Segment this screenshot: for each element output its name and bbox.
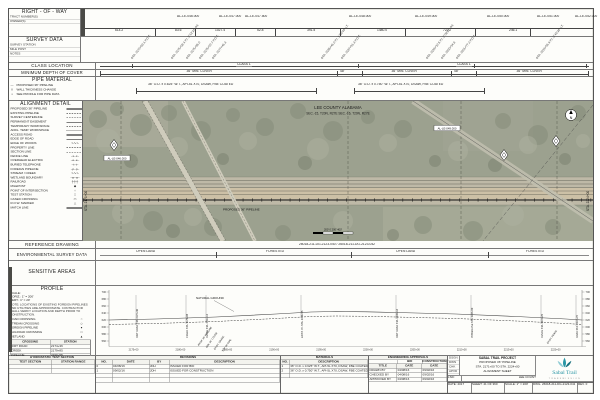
table-cell: DATE [422,364,447,368]
svg-text:620: 620 [586,318,591,322]
table-cell: 09/02/16 [422,373,447,377]
table-cell: 2 [281,369,290,373]
date-value: 2017 [457,383,464,386]
legend-label: PROPOSED 36" PIPELINE [17,84,54,87]
table-cell: 09/02/16 [113,369,150,373]
table-cell: JDH [149,365,169,369]
class-line [100,66,589,67]
legend-label: R.O.W. MARKER [11,202,34,205]
environmental-tick [216,252,217,258]
table-cell: 0 [96,365,113,369]
table-cell: APPROVED BY [369,378,397,382]
logo-leaf-left [558,361,564,367]
logo-leaf-right [565,361,571,367]
legend-symbol [67,122,84,123]
scale-value: 1" = 200' [517,383,529,386]
svg-text:2215+00: 2215+00 [504,349,514,352]
legend-symbol: –x–x– [67,155,84,158]
table-cell [290,374,368,378]
legend-symbol [67,134,84,136]
cover-tick [362,71,363,76]
svg-text:2180+00: 2180+00 [175,349,185,352]
svg-text:ROAD STA. 2219+70: ROAD STA. 2219+70 [576,315,579,338]
dim-tick [155,28,156,36]
table-cell: 1 [96,369,113,373]
table-cell: 09/02/16 [422,378,447,382]
svg-text:700: 700 [102,290,107,294]
reference-drawing-title: REFERENCE DRAWING [9,241,95,248]
tract-tag: AL-LE-049.000 [434,125,460,130]
table-cell: TEST SECTION [9,360,52,364]
legend-label: WALL THICKNESS CHANGE [17,88,57,91]
legend-label: STREAM / CREEK [11,172,36,175]
environmental-tick [351,252,352,258]
cover-tick [476,71,477,76]
survey-data-band: SURVEY DATA SURVEY STATION MILE POST NOT… [9,37,593,63]
svg-text:2175+00: 2175+00 [129,349,139,352]
svg-text:640: 640 [586,311,591,315]
survey-callout: STA. 2201+77.2 P.O.T. [456,34,477,60]
table-cell [149,374,169,378]
pipe-spec-line [136,91,316,92]
legend-symbol [67,148,84,149]
legend-symbol [67,126,84,127]
table-cell: 04/08/16 [113,365,150,369]
tract-label: AL-LE-051.000 [537,15,559,18]
table-cell [52,365,95,369]
sheet-edge-tab [9,267,12,352]
logo-cell: Sabal Trail T R A N S M I S S I O N [536,356,593,382]
legend-row: MATCH LINE [11,206,84,210]
class-tick [474,64,475,68]
cover-tick [451,71,452,76]
legend-symbol: ○ [73,318,90,321]
table-cell [113,378,150,382]
legend-label: FENCE LINE [11,155,29,158]
legend-symbol: –t–t– [67,164,84,167]
svg-text:560: 560 [586,339,591,343]
hydro-table: TEST SECTIONSTATION RANGE [9,360,95,374]
sheet-cell: SHEET: 41 OF 360 [472,383,505,393]
legend-symbol [67,113,84,114]
table-cell: STATION RANGE [52,360,95,364]
legend-symbol: ○ [67,189,84,192]
svg-text:600: 600 [102,325,107,329]
profile-ground-line [109,312,582,321]
lsd-label: LSD: [448,376,461,380]
table-cell [170,378,280,382]
logo-wordmark: Sabal Trail [552,370,577,376]
date-cell: DATE: 2017 [448,383,472,393]
svg-text:POWERLINE STA. 2207+90: POWERLINE STA. 2207+90 [471,307,474,338]
table-cell: 04/08/16 [397,373,422,377]
legend-symbol [67,139,84,140]
svg-text:N: N [570,116,573,120]
dim-tick [405,28,406,36]
right-of-way-band: RIGHT - OF - WAY TRACT NUMBER(S) OWNER(S… [9,9,593,37]
legend-symbol: — [9,84,15,87]
legend-label: WETLAND BOUNDARY [11,176,43,179]
legend-symbol: ∿∿∿ [67,142,84,145]
svg-text:200' 0 200' 400': 200' 0 200' 400' [324,228,343,232]
table-cell: 1 [281,365,290,369]
table-cell [96,374,113,378]
survey-callout-strip: STA. 2172+63.1 P.O.T. STA. 2175+08.4 P.I… [85,37,593,62]
drawing-sheet: RIGHT - OF - WAY TRACT NUMBER(S) OWNER(S… [8,8,594,394]
svg-text:2210+00: 2210+00 [457,349,467,352]
cover-segment-label: 48" [340,70,345,73]
alignment-sheet-page: RIGHT - OF - WAY TRACT NUMBER(S) OWNER(S… [0,0,600,400]
svg-text:AL-LE-049.000: AL-LE-049.000 [438,127,457,131]
svg-text:2200+00: 2200+00 [363,349,373,352]
class-location-strip: CLASS 1 CLASS 1 [96,63,593,69]
cover-title: MINIMUM DEPTH OF COVER [9,70,95,76]
legend-symbol: ‖ [9,88,15,91]
legend-symbol: ┼┼┼ [67,181,84,184]
table-cell: DATE [113,360,150,364]
county-cell: LEE COUNTY, ALABAMA [462,376,536,381]
reference-drawing-panel: REFERENCE DRAWING [9,241,96,248]
profile-scale-line: VERT.: 1" = 20' [10,299,96,303]
table-cell: 36" O.D. x 0.625" W.T., API-5L X70, DSAW… [290,365,368,369]
sensitive-areas-band: SENSITIVE AREAS [9,261,593,286]
dim-label: 1480.0 [377,29,387,32]
owner-field: OWNER(S) [9,20,80,25]
lsd-cell: LSD: [448,376,462,381]
project-line: ALIGNMENT SHEET [460,370,535,375]
table-cell: CROSSING [11,340,51,344]
matchline-right-label: STA. 2224+00 [586,191,590,211]
table-cell: 04/08/16 [397,378,422,382]
survey-field: NOTES [9,52,80,57]
survey-data-panel: SURVEY DATA SURVEY STATION MILE POST NOT… [9,37,81,62]
plan-map: LEE COUNTY ALABAMA SEC.-15, T20N, R27E S… [83,101,593,241]
materials-panel: MATERIALS NO.DESCRIPTION136" O.D. x 0.62… [281,356,369,393]
logo-leaf-center [563,358,566,368]
pipe-spec-strip: 36" O.D. x 0.625" W.T., API-5L X70, DSAW… [96,77,593,100]
legend-label: WETLAND [10,335,25,338]
legend-symbol: □ [67,194,84,197]
tract-label: AL-LE-046.000 [177,15,199,18]
legend-label: MATCH LINE [11,206,29,209]
environmental-line [100,255,589,256]
table-row: APPROVED BY04/08/1609/02/16 [369,378,447,383]
legend-label: PROPERTY LINE [11,146,35,149]
legend-symbol: ▲ [73,335,90,338]
approvals-group-bid: BID [398,360,423,364]
environmental-tick [488,252,489,258]
legend-label: RAILROAD CROSSING [10,331,42,334]
class-location-band: CLASS LOCATION CLASS 1 CLASS 1 [9,63,593,70]
table-cell [96,378,113,382]
legend-label: OVERHEAD ELECTRIC [11,159,44,162]
map-pipeline-label: PROPOSED 36" PIPELINE [223,208,260,212]
profile-elevation-labels-right: 700680 660640 620600 580560 [586,290,591,343]
tract-label: AL-LE-049.000 [415,15,437,18]
table-cell [52,369,95,373]
legend-label: FOREIGN PIPELINE [10,327,38,330]
legend-symbol: –e–e– [67,159,84,162]
svg-text:660: 660 [102,304,107,308]
approvals-group-construction: CONSTRUCTION [422,360,447,364]
dim-label: 246.1 [509,29,517,32]
table-cell: DESCRIPTION [170,360,280,364]
environmental-panel: ENVIRONMENTAL SURVEY DATA [9,249,96,260]
legend-row: POINT OF INTERSECTION○ [11,189,84,193]
legend-symbol: ▭ [67,198,84,201]
table-cell: CREEK [11,349,51,353]
svg-text:680: 680 [102,297,107,301]
legend-row: WETLAND▲ [10,335,90,339]
cover-segment-label: 36" MIN. COVER [391,70,417,73]
svg-text:620: 620 [102,318,107,322]
legend-symbol: ◇ [73,322,90,325]
natural-ground-label: NATURAL GROUND [196,296,225,300]
pipe-spec-label: 36" O.D. x 0.625" W.T., API-5L X70, DSAW… [148,83,233,86]
dim-label: 83.6 [175,29,181,32]
table-cell: DRAWN BY [369,369,397,373]
legend-symbol: ● [73,327,90,330]
class-tick [358,64,359,68]
environmental-strip: OPEN LAND FORESTED OPEN LAND FORESTED [96,249,593,260]
legend-symbol: ∿∿∿ [67,172,84,175]
legend-label: BURIED TELEPHONE [11,164,41,167]
sheet-label: SHEET: [472,383,483,386]
svg-text:2185+00: 2185+00 [222,349,232,352]
class-location-panel: CLASS LOCATION [9,63,96,69]
right-of-way-panel: RIGHT - OF - WAY TRACT NUMBER(S) OWNER(S… [9,9,81,36]
table-cell: CHECKED BY [369,373,397,377]
table-cell: ISSUED FOR CONSTRUCTION [170,369,280,373]
table-cell: STATION [51,340,91,344]
aerial-map-svg: LEE COUNTY ALABAMA SEC.-15, T20N, R27E S… [83,101,593,241]
map-sections-label: SEC.-15, T20N, R27E SEC.-16, T20N, R27E [306,112,369,116]
reference-drawing-band: REFERENCE DRAWING 26018-211-DG-2123-040 … [9,241,593,249]
sensitive-areas-panel: SENSITIVE AREAS [9,261,96,285]
legend-label: EDGE OF WOODS [11,142,37,145]
table-cell: TITLE [369,364,397,368]
dwg-label: DWG. [533,383,541,386]
table-cell: 2179+85 [51,349,91,353]
dim-label: 391.5 [307,29,315,32]
legend-label: ROAD CROSSING [10,318,36,321]
legend-symbol [67,130,84,131]
environmental-band: ENVIRONMENTAL SURVEY DATA OPEN LAND FORE… [9,249,593,261]
revisions-table: NO.DATEBYDESCRIPTION004/08/16JDHISSUED F… [96,360,280,383]
class-tick [586,64,587,68]
table-row [9,369,95,374]
cover-segment-label: 36" MIN. COVER [516,70,542,73]
legend-symbol [67,207,84,208]
scale-label: SCALE: [505,383,516,386]
table-cell [149,378,169,382]
table-cell [9,365,52,369]
titleblock-bottom-row: DATE: 2017 SHEET: 41 OF 360 SCALE: 1" = … [448,382,593,393]
county-row: LSD: LEE COUNTY, ALABAMA [448,375,536,382]
svg-text:640: 640 [102,311,107,315]
cover-line [100,74,589,75]
class-label: CLASS 1 [236,63,252,66]
tract-label: AL-LE-047.500 [245,15,267,18]
pipe-material-panel: PIPE MATERIAL PROPOSED 36" PIPELINE—WALL… [9,77,96,100]
sheet-value: 41 OF 360 [483,383,497,386]
legend-row: SEE PROFILE FOR PIPE DATA▪ [9,92,95,97]
legend-symbol [67,117,84,118]
legend-symbol: –p–p– [67,168,84,171]
environmental-segment: FORESTED [266,250,284,253]
class-location-title: CLASS LOCATION [9,63,95,69]
legend-label: SEE PROFILE FOR PIPE DATA [17,93,60,96]
survey-callout: STA. 2200+34.8 [441,41,457,60]
svg-text:CREEK STA. 2179+85: CREEK STA. 2179+85 [186,313,189,338]
legend-symbol [67,152,84,153]
reference-drawing-note: 26018-211-DG-2123-040 / 26018-211-DG-212… [299,243,375,246]
tract-strip: AL-LE-046.000 AL-LE-047.000 AL-LE-047.50… [85,9,593,36]
rev-cell: REV. 0 [578,383,593,393]
natural-ground-leader [214,301,234,312]
legend-symbol: –w–w– [67,176,84,179]
tract-label: AL-LE-052.000 [575,15,597,18]
legend-label: STREAM CROSSING [10,322,39,325]
profile-section: PROFILE SCALE: HORIZ.: 1" = 200' VERT.: … [9,286,593,356]
alignment-detail-legend: PROPOSED 36" PIPELINEEXISTING PIPELINESU… [9,107,83,210]
dim-label: 52.8 [257,29,263,32]
pipe-spec-tick [354,88,355,94]
cover-segment-label: 48" [454,70,459,73]
cover-strip: 36" MIN. COVER 48" 36" MIN. COVER 48" 36… [96,70,593,76]
svg-text:580: 580 [102,332,107,336]
sensitive-areas-title: SENSITIVE AREAS [9,261,95,283]
legend-label: EXISTING PIPELINE [11,112,39,115]
svg-text:680: 680 [586,297,591,301]
legend-label: POINT OF INTERSECTION [11,189,48,192]
class-tick [132,64,133,68]
titleblock-left-rows: DSGN DWN CHK APVD [448,356,460,375]
legend-symbol [67,109,84,110]
matchline-left-label: STA. 2171+00 [84,191,88,211]
pipe-spec-tick [316,88,317,94]
environmental-segment: OPEN LAND [136,250,155,253]
profile-station-labels: 2175+002180+00 2185+002190+00 2195+00220… [129,349,562,352]
tract-label: AL-LE-048.000 [349,15,371,18]
crossing-legend: ROAD CROSSING○STREAM CROSSING◇FOREIGN PI… [10,318,90,339]
profile-note: NOTE: LOCATIONS OF EXISTING FOREIGN PIPE… [10,304,90,317]
legend-label: TEMPORARY WORKSPACE [11,125,50,128]
svg-text:2190+00: 2190+00 [269,349,279,352]
svg-text:EXIST. FENCE: EXIST. FENCE [546,329,558,344]
revisions-panel: REVISIONS NO.DATEBYDESCRIPTION004/08/16J… [96,356,281,393]
dim-label: 614.2 [115,29,123,32]
svg-text:560: 560 [102,339,107,343]
table-row [96,378,280,383]
logo-subtext: T R A N S M I S S I O N [549,377,581,380]
project-text-cell: SABAL TRAIL PROJECT PROPOSED 36" PIPELIN… [460,356,536,375]
alignment-detail-panel: ALIGNMENT DETAIL PROPOSED 36" PIPELINEEX… [9,101,83,241]
svg-text:2220+00: 2220+00 [551,349,561,352]
rev-label: REV. [578,383,585,386]
approvals-panel: ENGINEERING APPROVALS BID CONSTRUCTION T… [369,356,448,393]
table-cell: 04/08/16 [397,369,422,373]
pipe-spec-tick [484,88,485,94]
svg-text:580: 580 [586,332,591,336]
cover-panel: MINIMUM DEPTH OF COVER [9,70,96,76]
table-cell: 2174+36 [51,344,91,348]
pipe-spec-tick [136,88,137,94]
dim-tick [235,28,236,36]
svg-text:2205+00: 2205+00 [410,349,420,352]
class-label: CLASS 1 [456,63,472,66]
legend-label: EDGE OF ROAD [11,138,34,141]
table-cell: ISSUED FOR BID [170,365,280,369]
dwg-cell: DWG. 26018-211-DG-2123-041 [533,383,578,393]
rev-value: 0 [586,383,588,386]
table-cell: NO. [281,360,290,364]
profile-elevation-labels-left: 700680 660640 620600 580560 [102,290,107,343]
legend-label: RAILROAD [11,181,26,184]
tract-label: AL-LE-047.000 [219,15,241,18]
svg-text:FENCE STA. 2215+25: FENCE STA. 2215+25 [541,313,544,338]
svg-text:DIRT ROAD STA. 2174+36: DIRT ROAD STA. 2174+36 [136,308,139,338]
legend-label: ACCESS ROAD [11,133,33,136]
table-cell: JDH [149,369,169,373]
table-cell: 36" O.D. x 0.750" W.T., API-5L X70, DSAW… [290,369,368,373]
svg-text:2195+00: 2195+00 [316,349,326,352]
svg-text:EXIST. P/L STA. 2190+55: EXIST. P/L STA. 2190+55 [301,310,304,338]
tract-label: AL-LE-050.000 [487,15,509,18]
legend-label: FOREIGN PIPELINE [11,168,39,171]
sabal-trail-logo: Sabal Trail T R A N S M I S S I O N [536,356,593,381]
titleblock-left-row: APVD [448,370,459,375]
legend-label: PROPOSED 36" PIPELINE [11,108,48,111]
cover-band: MINIMUM DEPTH OF COVER 36" MIN. COVER 48… [9,70,593,77]
legend-label: ADDL. TEMP. WORKSPACE [11,129,50,132]
legend-label: SECTION LINE [11,151,32,154]
dim-tick [530,28,531,36]
materials-table: NO.DESCRIPTION136" O.D. x 0.625" W.T., A… [281,360,368,378]
pipe-spec-label: 36" O.D. x 0.750" W.T., API-5L X70, DSAW… [358,83,443,86]
county-label: LEE COUNTY, ALABAMA [499,376,536,380]
map-county-label: LEE COUNTY ALABAMA [314,105,362,110]
legend-symbol: □ [73,331,90,334]
legend-label: TEST STATION [11,194,32,197]
profile-panel: PROFILE SCALE: HORIZ.: 1" = 200' VERT.: … [9,286,96,355]
dwg-number: 26018-211-DG-2123-041 [542,383,575,386]
svg-text:600: 600 [586,325,591,329]
profile-pipe-line [109,316,582,325]
environmental-segment: OPEN LAND [396,250,415,253]
environmental-segment: FORESTED [526,250,544,253]
table-row [281,374,368,379]
dim-tick [275,28,276,36]
tract-tag: AL-LE-046.000 [104,155,130,160]
survey-callout: STA. 2172+63.1 P.O.T. [131,34,152,60]
table-cell [113,374,150,378]
svg-text:AL-LE-046.000: AL-LE-046.000 [108,157,127,161]
legend-label: PERMANENT EASEMENT [11,121,47,124]
title-block: DSGN DWN CHK APVD SABAL TRAIL PROJECT PR… [448,356,593,393]
table-cell: BY [149,360,169,364]
legend-symbol: △ [67,202,84,205]
legend-symbol: ▪ [9,93,15,96]
scale-cell: SCALE: 1" = 200' [505,383,533,393]
table-cell: DATE [397,364,422,368]
date-label: DATE: [448,383,457,386]
legend-symbol: ◆ [67,185,84,188]
table-cell: 09/02/16 [422,369,447,373]
cover-segment-label: 36" MIN. COVER [186,70,212,73]
cover-tick [100,71,101,76]
table-cell [9,369,52,373]
